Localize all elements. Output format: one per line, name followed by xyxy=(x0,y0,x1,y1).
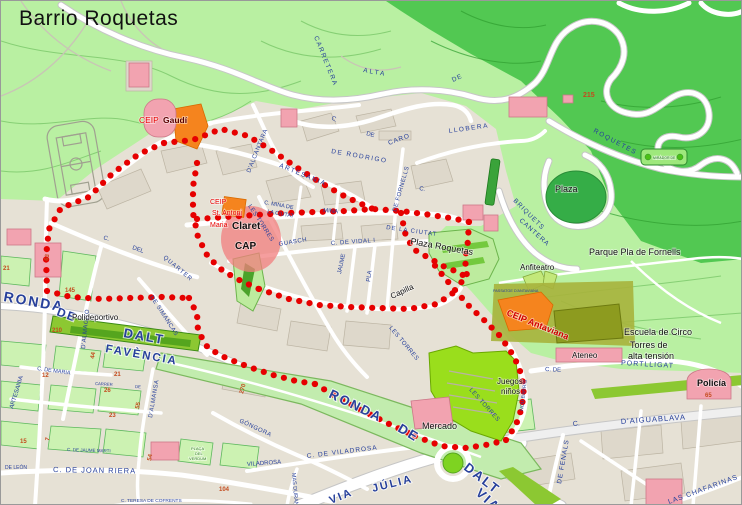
route-dot xyxy=(380,305,386,311)
route-dot xyxy=(45,236,51,242)
escuela-de-circo-label: Escuela de Circo xyxy=(624,327,692,337)
route-dot xyxy=(348,304,354,310)
route-dot xyxy=(93,187,99,193)
route-dot xyxy=(286,296,292,302)
route-dot xyxy=(199,334,205,340)
route-dot xyxy=(195,325,201,331)
route-dot xyxy=(369,305,375,311)
route-dot xyxy=(138,295,144,301)
route-dot xyxy=(204,343,210,349)
route-dot xyxy=(127,295,133,301)
route-dot xyxy=(171,139,177,145)
plaza-label: Plaza xyxy=(555,184,578,194)
route-dot xyxy=(278,154,284,160)
torres-alta-tension-2-label: alta tensión xyxy=(628,351,674,361)
route-dot xyxy=(191,304,197,310)
route-dot xyxy=(199,242,205,248)
route-dot xyxy=(85,194,91,200)
route-dot xyxy=(269,148,275,154)
route-dot xyxy=(359,201,365,207)
route-dot xyxy=(400,220,406,226)
route-dot xyxy=(401,306,407,312)
map-svg: CARRETERAALTADEROQUETESC.DEDE RODRIGOCAR… xyxy=(1,1,742,505)
route-dot xyxy=(483,442,489,448)
route-dot xyxy=(251,366,257,372)
route-dot xyxy=(481,317,487,323)
route-dot xyxy=(431,258,437,264)
route-dot xyxy=(242,132,248,138)
route-dot xyxy=(445,279,451,285)
plaza-circle xyxy=(546,171,606,223)
route-dot xyxy=(193,222,199,228)
route-dot xyxy=(502,340,508,346)
roundabout-green xyxy=(443,453,463,473)
route-dot xyxy=(85,295,91,301)
route-dot xyxy=(473,310,479,316)
route-dot xyxy=(204,215,210,221)
ceip-claret-name-label: Claret xyxy=(232,221,261,232)
route-dot xyxy=(455,217,461,223)
route-dot xyxy=(296,298,302,304)
route-dot xyxy=(517,368,523,374)
route-dot xyxy=(301,379,307,385)
route-dot xyxy=(281,375,287,381)
route-dot xyxy=(466,303,472,309)
route-dot xyxy=(489,325,495,331)
route-dot xyxy=(246,281,252,287)
placa-verdum-3-label: VERDUM xyxy=(189,456,206,461)
house-number: 21 xyxy=(3,266,10,272)
route-dot xyxy=(202,132,208,138)
route-dot xyxy=(236,277,242,283)
route-dot xyxy=(414,210,420,216)
route-dot xyxy=(192,136,198,142)
route-dot xyxy=(151,144,157,150)
route-dot xyxy=(390,305,396,311)
route-dot xyxy=(44,246,50,252)
route-dot xyxy=(75,294,81,300)
route-dot xyxy=(133,153,139,159)
route-dot xyxy=(509,428,515,434)
route-dot xyxy=(309,209,315,215)
street-label: C. DE xyxy=(545,367,561,374)
street-label: C. TERESA DE COFRENTS xyxy=(121,498,182,504)
street-label: DE xyxy=(135,384,141,389)
route-dot xyxy=(251,137,257,143)
route-dot xyxy=(473,443,479,449)
route-dot xyxy=(212,128,218,134)
street-label: PASSATGE D'ANTAVIANA xyxy=(493,289,539,293)
route-dot xyxy=(65,202,71,208)
route-dot xyxy=(46,225,52,231)
route-dot xyxy=(462,261,468,267)
policia-label: Policía xyxy=(697,378,727,388)
route-dot xyxy=(291,377,297,383)
juegos-ninos-2-label: niños xyxy=(501,387,520,396)
street-label: C. DE JOAN RIERA xyxy=(53,465,136,475)
route-dot xyxy=(439,271,445,277)
route-dot xyxy=(106,296,112,302)
route-dot xyxy=(369,205,375,211)
route-dot xyxy=(190,212,196,218)
route-dot xyxy=(421,303,427,309)
route-dot xyxy=(452,444,458,450)
route-dot xyxy=(424,211,430,217)
house-number: 210 xyxy=(52,328,63,334)
route-dot xyxy=(460,272,466,278)
route-dot xyxy=(75,198,81,204)
route-dot xyxy=(514,419,520,425)
route-dot xyxy=(465,229,471,235)
route-dot xyxy=(359,304,365,310)
house-number: 23 xyxy=(109,413,116,419)
route-dot xyxy=(256,286,262,292)
route-dot xyxy=(117,295,123,301)
route-dot xyxy=(413,248,419,254)
street-label: CARRER xyxy=(95,381,113,387)
street-label: C. xyxy=(573,420,581,428)
route-dot xyxy=(459,295,465,301)
route-dot xyxy=(404,209,410,215)
route-dot xyxy=(116,166,122,172)
route-dot xyxy=(306,300,312,306)
route-dot xyxy=(194,160,200,166)
route-dot xyxy=(222,127,228,133)
route-dot xyxy=(299,209,305,215)
house-number: 26 xyxy=(104,388,111,394)
route-dot xyxy=(271,372,277,378)
parque-pla-de-fornells-label: Parque Pla de Fornells xyxy=(589,247,681,257)
ceip-gaudi-name-label: Gaudí xyxy=(163,115,188,125)
route-dot xyxy=(212,349,218,355)
route-dot xyxy=(463,445,469,451)
route-dot xyxy=(266,289,272,295)
route-dot xyxy=(435,213,441,219)
route-dot xyxy=(192,170,198,176)
route-dot xyxy=(327,303,333,309)
route-dot xyxy=(508,349,514,355)
route-dot xyxy=(386,421,392,427)
route-dot xyxy=(221,354,227,360)
route-dot xyxy=(503,437,509,443)
ceip-claret-3-label: Maria xyxy=(210,222,228,229)
route-dot xyxy=(441,263,447,269)
route-dot xyxy=(338,303,344,309)
route-dot xyxy=(340,192,346,198)
route-dot xyxy=(218,266,224,272)
ceip-gaudi-label: CEIP xyxy=(139,115,159,125)
route-dot xyxy=(232,130,238,136)
street-label: DE LEÓN xyxy=(5,464,27,471)
house-number: 215 xyxy=(583,92,595,99)
route-dot xyxy=(432,301,438,307)
route-dot xyxy=(180,295,186,301)
route-dot xyxy=(186,295,192,301)
route-dot xyxy=(312,381,318,387)
route-dot xyxy=(383,207,389,213)
house-number: 65 xyxy=(705,393,712,399)
route-dot xyxy=(44,278,50,284)
route-dot xyxy=(227,272,233,278)
route-dot xyxy=(161,140,167,146)
route-dot xyxy=(190,202,196,208)
route-dot xyxy=(493,439,499,445)
ceip-claret-2-label: St. Antoni xyxy=(212,210,242,217)
route-dot xyxy=(142,148,148,154)
route-dot xyxy=(466,219,472,225)
route-dot xyxy=(411,305,417,311)
route-dot xyxy=(100,180,106,186)
ceip-claret-label: CEIP xyxy=(210,199,227,206)
route-dot xyxy=(331,187,337,193)
route-dot xyxy=(211,259,217,265)
house-number: 15 xyxy=(20,439,27,445)
route-dot xyxy=(422,437,428,443)
house-number: 21 xyxy=(114,372,121,378)
route-dot xyxy=(449,290,455,296)
route-dot xyxy=(422,253,428,259)
route-dot xyxy=(351,207,357,213)
route-dot xyxy=(169,294,175,300)
route-dot xyxy=(261,369,267,375)
route-dot xyxy=(341,208,347,214)
route-dot xyxy=(182,138,188,144)
route-dot xyxy=(445,215,451,221)
cap-label: CAP xyxy=(235,241,256,252)
route-dot xyxy=(398,210,404,216)
polideportivo-label: Polideportivo xyxy=(72,313,119,322)
route-dot xyxy=(458,279,464,285)
route-dot xyxy=(441,296,447,302)
route-dot xyxy=(44,288,50,294)
route-dot xyxy=(513,358,519,364)
mercado-label: Mercado xyxy=(422,421,457,431)
route-dot xyxy=(159,294,165,300)
route-dot xyxy=(241,362,247,368)
route-dot xyxy=(96,296,102,302)
route-dot xyxy=(43,267,49,273)
route-dot xyxy=(54,290,60,296)
house-number: 145 xyxy=(65,288,76,294)
route-dot xyxy=(190,181,196,187)
route-dot xyxy=(195,233,201,239)
route-dot xyxy=(450,267,456,273)
route-dot xyxy=(107,172,113,178)
route-dot xyxy=(52,216,58,222)
route-dot xyxy=(57,207,63,213)
route-dot xyxy=(204,252,210,258)
juegos-ninos-1-label: Juegos xyxy=(497,377,523,386)
route-dot xyxy=(124,160,130,166)
route-dot xyxy=(321,386,327,392)
house-number: 12 xyxy=(42,373,49,379)
torres-alta-tension-1-label: Torres de xyxy=(630,340,668,350)
route-dot xyxy=(194,314,200,320)
route-dot xyxy=(432,440,438,446)
house-number: 104 xyxy=(219,487,230,493)
map-title: Barrio Roquetas xyxy=(19,7,178,31)
mirador-sign-label: MIRADOR DE xyxy=(653,156,676,160)
route-dot xyxy=(496,332,502,338)
route-dot xyxy=(442,443,448,449)
route-dot xyxy=(317,302,323,308)
ateneo-label: Ateneo xyxy=(572,351,598,360)
route-dot xyxy=(231,358,237,364)
map-canvas: Barrio Roquetas xyxy=(0,0,742,505)
route-dot xyxy=(350,197,356,203)
route-dot xyxy=(362,207,368,213)
route-dot xyxy=(190,191,196,197)
route-dot xyxy=(276,293,282,299)
anfiteatro-label: Anfiteatro xyxy=(520,263,555,272)
